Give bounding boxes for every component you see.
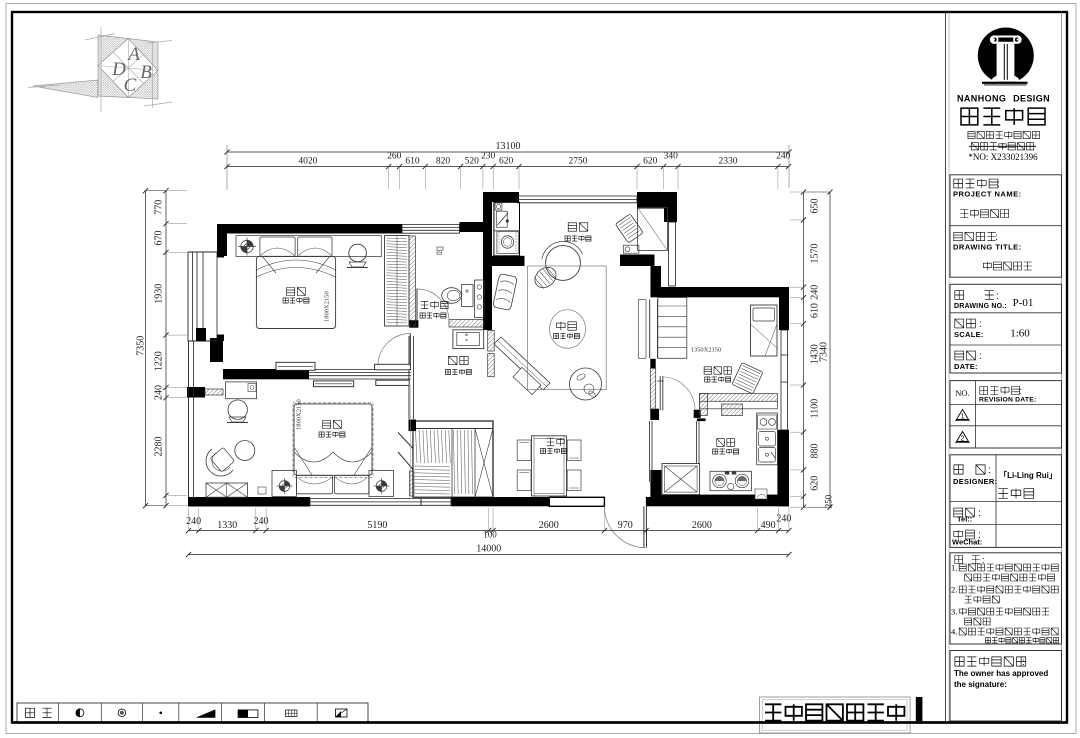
svg-text:340: 340 — [664, 152, 679, 162]
svg-text:490: 490 — [761, 520, 776, 531]
svg-text:1930: 1930 — [154, 284, 165, 304]
svg-text:the signature:: the signature: — [954, 680, 1007, 689]
svg-text:*NO: X233021396: *NO: X233021396 — [968, 152, 1038, 162]
svg-text:2600: 2600 — [692, 520, 712, 531]
svg-text:3.: 3. — [951, 607, 957, 617]
svg-text:610: 610 — [810, 303, 821, 318]
svg-text:4020: 4020 — [298, 157, 317, 167]
svg-text:1220: 1220 — [154, 351, 165, 371]
svg-text:970: 970 — [618, 520, 633, 531]
svg-text::: : — [982, 555, 985, 565]
svg-text:1800X2150: 1800X2150 — [324, 291, 331, 322]
svg-text:620: 620 — [643, 157, 658, 167]
svg-text:DRAWING NO.:: DRAWING NO.: — [954, 303, 1007, 310]
svg-text:DESIGN: DESIGN — [1013, 94, 1050, 104]
svg-text:1:60: 1:60 — [1010, 328, 1030, 340]
svg-text::: : — [1020, 386, 1023, 396]
svg-text::: : — [997, 179, 1000, 190]
svg-text:770: 770 — [154, 200, 165, 215]
svg-text::: : — [988, 465, 991, 476]
svg-text:620: 620 — [810, 476, 821, 491]
svg-text:7340: 7340 — [819, 342, 830, 362]
svg-text:5190: 5190 — [367, 520, 387, 531]
svg-text:1330: 1330 — [217, 520, 237, 531]
svg-text:820: 820 — [436, 157, 451, 167]
svg-text:880: 880 — [810, 444, 821, 459]
svg-text:A: A — [126, 44, 140, 65]
svg-text:1: 1 — [961, 414, 965, 421]
svg-text:240: 240 — [154, 385, 165, 400]
svg-text:NO.: NO. — [955, 388, 969, 398]
svg-text::: : — [995, 232, 998, 243]
svg-text:260: 260 — [387, 152, 402, 162]
svg-text::: : — [979, 319, 982, 330]
svg-text:WeChat:: WeChat: — [952, 538, 982, 547]
svg-text:1350X2150: 1350X2150 — [691, 347, 722, 354]
svg-text::: : — [996, 291, 999, 302]
svg-text:240: 240 — [810, 285, 821, 300]
svg-text:The owner has approved: The owner has approved — [954, 669, 1048, 678]
svg-text:DESIGNER:: DESIGNER: — [953, 477, 997, 486]
svg-text:7350: 7350 — [136, 336, 147, 356]
svg-text:1.: 1. — [951, 563, 957, 573]
svg-text:DRAWING TITLE:: DRAWING TITLE: — [953, 243, 1022, 252]
svg-text:14000: 14000 — [476, 544, 501, 555]
svg-text::: : — [979, 351, 982, 362]
svg-text:DATE:: DATE: — [954, 362, 978, 371]
svg-text:Tel::: Tel:: — [957, 515, 972, 524]
svg-text:100: 100 — [483, 530, 497, 540]
svg-text:240: 240 — [776, 152, 791, 162]
svg-text:620: 620 — [499, 157, 514, 167]
svg-text:250: 250 — [824, 494, 834, 508]
svg-text:2330: 2330 — [719, 157, 738, 167]
svg-text:2: 2 — [961, 436, 965, 443]
svg-text:1570: 1570 — [810, 244, 821, 264]
svg-text:520: 520 — [465, 157, 480, 167]
svg-text:「Li-Ling Rui」: 「Li-Ling Rui」 — [999, 470, 1057, 480]
svg-text:1100: 1100 — [810, 399, 821, 419]
svg-text:1800X2150: 1800X2150 — [296, 399, 303, 430]
svg-text:P-01: P-01 — [1013, 297, 1034, 309]
svg-text:SCALE:: SCALE: — [954, 330, 984, 339]
svg-text:4.: 4. — [951, 627, 957, 637]
svg-text:650: 650 — [810, 199, 821, 214]
svg-text:2.: 2. — [951, 585, 957, 595]
svg-text:B: B — [140, 62, 152, 83]
svg-text:D: D — [111, 59, 126, 80]
svg-text:2600: 2600 — [539, 520, 559, 531]
svg-text:13100: 13100 — [496, 141, 521, 152]
svg-text:2750: 2750 — [569, 157, 588, 167]
svg-text:PROJECT NAME:: PROJECT NAME: — [953, 190, 1022, 199]
svg-text:NANHONG: NANHONG — [957, 94, 1006, 104]
svg-text:610: 610 — [405, 157, 420, 167]
svg-text::: : — [978, 508, 981, 519]
svg-text:670: 670 — [154, 231, 165, 246]
svg-text:REVISION DATE:: REVISION DATE: — [979, 397, 1036, 404]
svg-text:2280: 2280 — [154, 437, 165, 457]
svg-text::: : — [1022, 657, 1025, 668]
svg-text:230: 230 — [481, 152, 496, 162]
